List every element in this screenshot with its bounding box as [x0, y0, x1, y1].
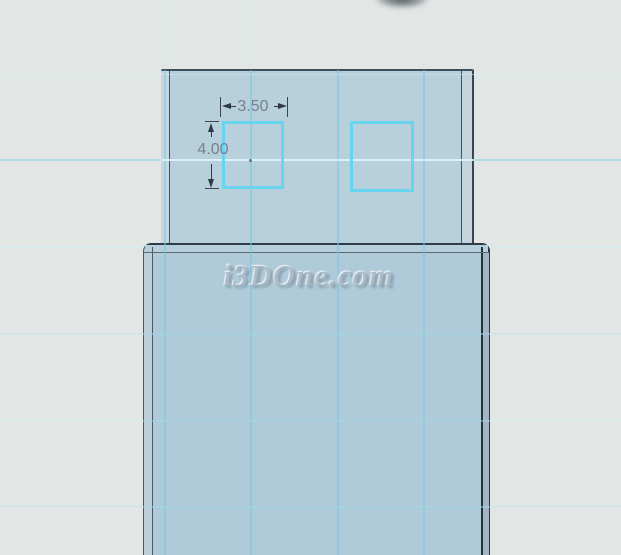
dim-arrow-right-icon — [278, 103, 287, 109]
dim-height-label[interactable]: 4.00 — [197, 142, 228, 158]
grid-line — [595, 0, 596, 555]
cad-viewport[interactable]: i3DOne.com 3.50 4.00 — [0, 0, 621, 555]
model-body-left-side[interactable] — [144, 252, 152, 555]
dim-extension-tick — [287, 97, 288, 117]
sketch-square-2[interactable] — [350, 121, 414, 192]
dim-width-label[interactable]: 3.50 — [237, 99, 268, 115]
dim-line — [211, 164, 212, 179]
model-edge — [169, 70, 170, 244]
model-edge — [461, 70, 462, 244]
dim-line — [211, 131, 212, 137]
watermark-text: i3DOne.com — [223, 258, 394, 294]
sketch-origin-point[interactable] — [249, 159, 252, 162]
dim-extension-tick — [205, 121, 219, 122]
sketch-square-1[interactable] — [222, 121, 284, 189]
model-edge — [152, 247, 153, 555]
dim-extension-tick — [205, 188, 219, 189]
model-body-right-side[interactable] — [482, 252, 489, 555]
grid-line — [509, 0, 510, 555]
model-edge — [481, 247, 483, 555]
dim-arrow-down-icon — [208, 179, 214, 188]
dim-line — [229, 106, 236, 107]
model-shield-left-side[interactable] — [161, 71, 169, 244]
model-shield-right-side[interactable] — [462, 71, 472, 244]
grid-line — [77, 0, 78, 555]
model-body-top-band — [145, 245, 488, 252]
model-edge — [144, 252, 489, 253]
